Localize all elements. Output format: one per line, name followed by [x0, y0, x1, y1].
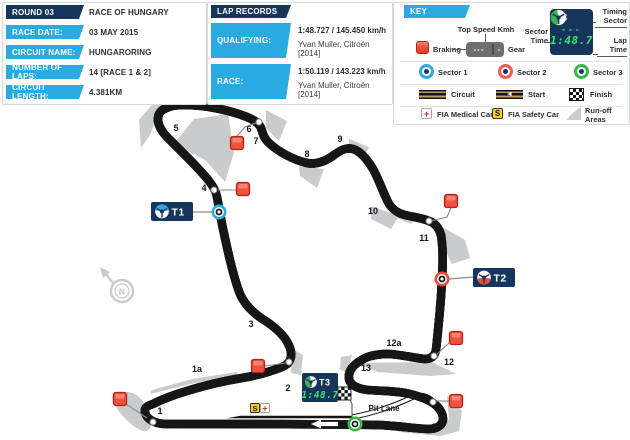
braking-marker	[450, 395, 463, 408]
lap-records-panel: LAP RECORDS QUALIFYING:1:48.727 / 145.45…	[207, 2, 393, 105]
braking-pointer	[452, 49, 466, 50]
braking-marker	[450, 332, 463, 345]
key-separator	[400, 61, 622, 62]
sector-badge-T2: T2	[473, 268, 515, 287]
turn-dot	[430, 399, 436, 405]
gear-label: Gear	[508, 46, 525, 55]
sector-marker-T3	[348, 417, 363, 432]
turn-dot	[211, 187, 217, 193]
sector-icon-center	[422, 67, 431, 76]
race-info-panel: ROUND 03RACE OF HUNGARYRACE DATE:03 MAY …	[2, 2, 207, 105]
circuit-guide-page: N Pit Lane S + T1T2T31:48.711a2345678910…	[0, 0, 630, 440]
info-row: NUMBER OF LAPS:14 [RACE 1 & 2]	[3, 65, 206, 79]
lap-record-row: QUALIFYING:1:48.727 / 145.450 km/hYvan M…	[208, 23, 392, 58]
timing-sector-pointer	[593, 22, 596, 23]
top-speed-label: Top Speed Kmh	[454, 26, 518, 35]
gear-display-left: ---	[466, 45, 492, 54]
fia-safety-car-label: FIA Safety Car	[508, 111, 559, 120]
sector-3-icon	[574, 64, 589, 79]
sector-marker-T1	[212, 205, 227, 220]
corner-label-8: 8	[304, 149, 309, 159]
key-header: KEY	[404, 5, 470, 18]
lap-time-label: Lap Time	[597, 37, 627, 57]
sector-marker-T2	[435, 272, 450, 287]
braking-marker	[252, 360, 265, 373]
info-row-value: RACE OF HUNGARY	[89, 5, 169, 19]
turn-dot	[286, 359, 292, 365]
timing-sector-label: Timing Sector	[595, 8, 627, 28]
compass-n-label: N	[119, 287, 125, 297]
info-row-label: ROUND 03	[6, 5, 84, 19]
lap-record-time: 1:50.119 / 143.223 km/h	[298, 67, 390, 76]
safety-car-marker: S	[251, 404, 260, 413]
timing-badge-sample: T3 --- 1:48.7	[550, 9, 593, 55]
gear-display-icon: --- -	[466, 42, 504, 57]
info-row: CIRCUIT NAME:HUNGARORING	[3, 45, 206, 59]
sector-1-icon	[419, 64, 434, 79]
braking-icon	[416, 41, 429, 54]
turn-dot	[431, 353, 437, 359]
sector-badge-T3: T31:48.7	[301, 373, 338, 402]
sector-1-label: Sector 1	[438, 68, 468, 77]
braking-marker	[114, 393, 127, 406]
key-panel: KEY Top Speed Kmh Braking --- - Gear Sec…	[393, 2, 630, 125]
steering-wheel-icon	[551, 10, 567, 26]
svg-text:T3: T3	[319, 378, 331, 388]
info-row-value: 14 [RACE 1 & 2]	[89, 65, 151, 79]
lap-time-pointer	[593, 54, 598, 55]
info-row-value: 4.381KM	[89, 85, 122, 99]
lap-record-value: 1:48.727 / 145.450 km/hYvan Muller, Citr…	[298, 23, 390, 58]
svg-text:T2: T2	[494, 273, 507, 285]
lap-record-driver: Yvan Muller, Citroën [2014]	[298, 40, 390, 58]
corner-label-4: 4	[201, 183, 206, 193]
sector-badge-time: 1:48.7	[301, 390, 338, 401]
sector-2-label: Sector 2	[517, 68, 547, 77]
pit-lane-label: Pit Lane	[368, 404, 400, 413]
compass-icon: N	[100, 267, 133, 302]
turn-dot	[256, 119, 262, 125]
corner-label-11: 11	[419, 233, 429, 243]
info-row-value: HUNGARORING	[89, 45, 151, 59]
lap-record-time: 1:48.727 / 145.450 km/h	[298, 26, 390, 35]
steering-wheel-icon	[305, 376, 317, 388]
lap-records-header: LAP RECORDS	[211, 5, 291, 18]
corner-label-7: 7	[253, 136, 258, 146]
corner-label-6: 6	[246, 124, 251, 134]
svg-text:S: S	[252, 404, 257, 413]
braking-marker	[237, 183, 250, 196]
steering-wheel-icon	[550, 9, 567, 26]
timing-badge-dashes: ---	[550, 25, 593, 34]
info-row: RACE DATE:03 MAY 2015	[3, 25, 206, 39]
medical-glyph: +	[424, 109, 429, 119]
circuit-label: Circuit	[451, 91, 475, 100]
sector-2-icon	[498, 64, 513, 79]
corner-label-2: 2	[285, 383, 290, 393]
corner-label-1a: 1a	[192, 364, 203, 374]
info-row-label: RACE DATE:	[6, 25, 84, 39]
corner-label-12a: 12a	[386, 338, 402, 348]
fia-medical-car-label: FIA Medical Car	[437, 111, 493, 120]
corner-label-14: 14	[431, 422, 441, 432]
lap-record-label: QUALIFYING:	[211, 23, 291, 58]
lap-record-driver: Yvan Muller, Citroën [2014]	[298, 81, 390, 99]
runoff-areas-icon	[566, 106, 582, 121]
sector-icon-center	[501, 67, 510, 76]
info-row-header: ROUND 03RACE OF HUNGARY	[3, 5, 206, 19]
safety-glyph: S	[495, 109, 500, 118]
corner-label-5: 5	[173, 123, 178, 133]
turn-dot	[426, 218, 432, 224]
corner-label-3: 3	[248, 319, 253, 329]
runoff-areas	[112, 99, 470, 436]
sector-icon-center	[577, 67, 586, 76]
corner-label-10: 10	[368, 206, 378, 216]
finish-icon	[569, 88, 584, 101]
finish-flag-icon	[338, 387, 351, 400]
info-row-label: CIRCUIT NAME:	[6, 45, 84, 59]
gear-display-right: -	[494, 45, 504, 54]
lap-record-row: RACE:1:50.119 / 143.223 km/hYvan Muller,…	[208, 64, 392, 99]
info-row: CIRCUIT LENGTH:4.381KM	[3, 85, 206, 99]
start-icon: ◄	[496, 90, 523, 99]
finish-label: Finish	[590, 91, 612, 100]
lap-record-label: RACE:	[211, 64, 291, 99]
corner-label-9: 9	[337, 134, 342, 144]
steering-wheel-icon	[477, 271, 491, 285]
sector-3-label: Sector 3	[593, 68, 623, 77]
runoff-areas-label: Run-off Areas	[585, 107, 619, 124]
corner-label-12: 12	[444, 357, 454, 367]
svg-text:T1: T1	[172, 207, 185, 219]
circuit-icon	[419, 90, 446, 99]
medical-car-marker: +	[261, 403, 270, 413]
timing-badge-time: 1:48.7	[550, 34, 593, 47]
key-separator	[400, 84, 622, 85]
sector-pointer-line	[449, 277, 473, 279]
info-row-label: NUMBER OF LAPS:	[6, 65, 84, 79]
sector-badge-T1: T1	[151, 202, 193, 221]
info-row-value: 03 MAY 2015	[89, 25, 138, 39]
info-row-label: CIRCUIT LENGTH:	[6, 85, 84, 99]
svg-text:+: +	[262, 403, 267, 413]
top-speed-pointer	[485, 34, 486, 42]
corner-label-13: 13	[361, 363, 371, 373]
steering-wheel-icon	[155, 205, 169, 219]
braking-marker	[445, 195, 458, 208]
fia-safety-car-icon: S	[492, 108, 503, 119]
corner-label-1: 1	[157, 406, 162, 416]
start-label: Start	[528, 91, 545, 100]
fia-medical-car-icon: +	[421, 108, 432, 119]
turn-dot	[150, 419, 156, 425]
start-arrow-glyph: ◄	[496, 90, 523, 99]
braking-marker	[231, 137, 244, 150]
braking-label: Braking	[433, 46, 461, 55]
lap-record-value: 1:50.119 / 143.223 km/hYvan Muller, Citr…	[298, 64, 390, 99]
